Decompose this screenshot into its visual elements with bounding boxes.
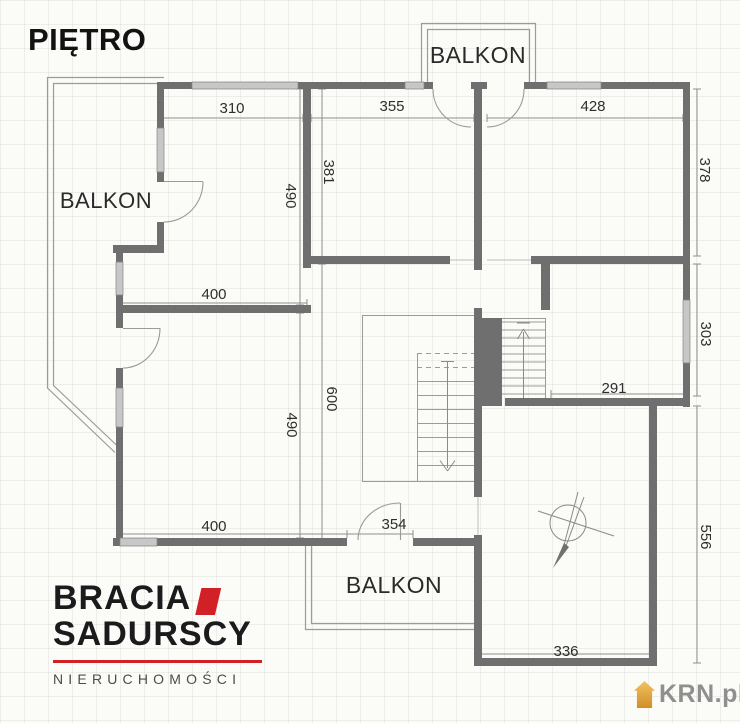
krn-house-icon (634, 681, 655, 708)
door-arc-top-balcony-right (487, 89, 524, 127)
door-arc-balcony-left (164, 182, 203, 223)
krn-watermark: KRN.pl (634, 680, 740, 709)
agency-logo: BRACIA SADURSCY NIERUCHOMOŚCI (53, 581, 262, 687)
stair-arrow-down (440, 362, 455, 472)
dim-400-bottom: 400 (189, 519, 239, 535)
dim-378: 378 (696, 145, 712, 195)
dim-490-bottom: 490 (283, 400, 299, 450)
dim-336: 336 (541, 644, 591, 660)
door-arc-top-balcony-left (433, 89, 471, 127)
dim-428: 428 (568, 99, 618, 115)
dim-556: 556 (697, 512, 713, 562)
dim-303: 303 (697, 309, 713, 359)
dim-381: 381 (320, 147, 336, 197)
dim-400-top: 400 (189, 287, 239, 303)
dim-600: 600 (323, 374, 339, 424)
stair-treads-dashed (417, 354, 476, 368)
agency-logo-row1: BRACIA (53, 581, 262, 615)
dim-310: 310 (207, 101, 257, 117)
dim-355: 355 (367, 99, 417, 115)
balcony-left-label: BALKON (56, 188, 156, 214)
krn-watermark-text: KRN.pl (659, 680, 740, 709)
north-arrow-icon (538, 492, 614, 568)
floorplan-canvas: PIĘTRO BALKON BALKON BALKON 310 355 428 … (0, 0, 740, 723)
logo-divider (53, 660, 262, 663)
windows (116, 82, 690, 546)
stair-void-outline (363, 316, 477, 482)
agency-tagline: NIERUCHOMOŚCI (53, 671, 262, 687)
dim-490-top: 490 (282, 171, 298, 221)
agency-name-line1: BRACIA (53, 581, 191, 615)
stair-treads-down (417, 354, 476, 482)
balcony-left-outline (48, 78, 165, 453)
door-arc-left-room (123, 328, 160, 368)
balcony-bottom-label: BALKON (344, 572, 444, 599)
page-title: PIĘTRO (28, 22, 146, 58)
dim-291: 291 (589, 381, 639, 397)
dim-354: 354 (369, 517, 419, 533)
agency-name-line2: SADURSCY (53, 617, 262, 651)
logo-red-parallelogram-icon (195, 588, 221, 615)
balcony-top-label: BALKON (428, 42, 528, 69)
